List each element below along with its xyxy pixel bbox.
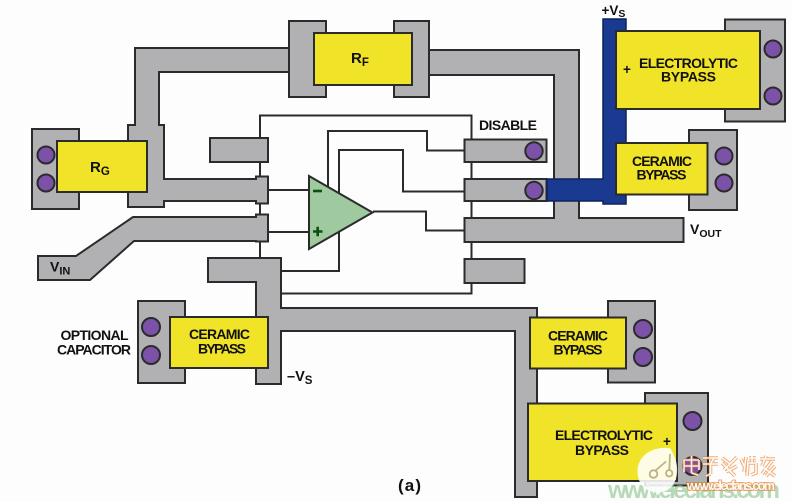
svg-text:ELECTROLYTIC: ELECTROLYTIC [555, 427, 653, 443]
svg-text:+: + [623, 62, 631, 77]
svg-text:DISABLE: DISABLE [479, 117, 537, 133]
svg-text:BYPASS: BYPASS [661, 69, 716, 85]
svg-text:CAPACITOR: CAPACITOR [57, 342, 131, 358]
svg-text:(a): (a) [398, 476, 421, 495]
svg-text:+: + [663, 434, 671, 449]
svg-text:BYPASS: BYPASS [554, 342, 603, 358]
svg-text:BYPASS: BYPASS [198, 341, 246, 357]
svg-text:www.elecfans.com: www.elecfans.com [686, 479, 775, 493]
svg-text:BYPASS: BYPASS [637, 167, 687, 183]
svg-text:BYPASS: BYPASS [575, 442, 629, 458]
